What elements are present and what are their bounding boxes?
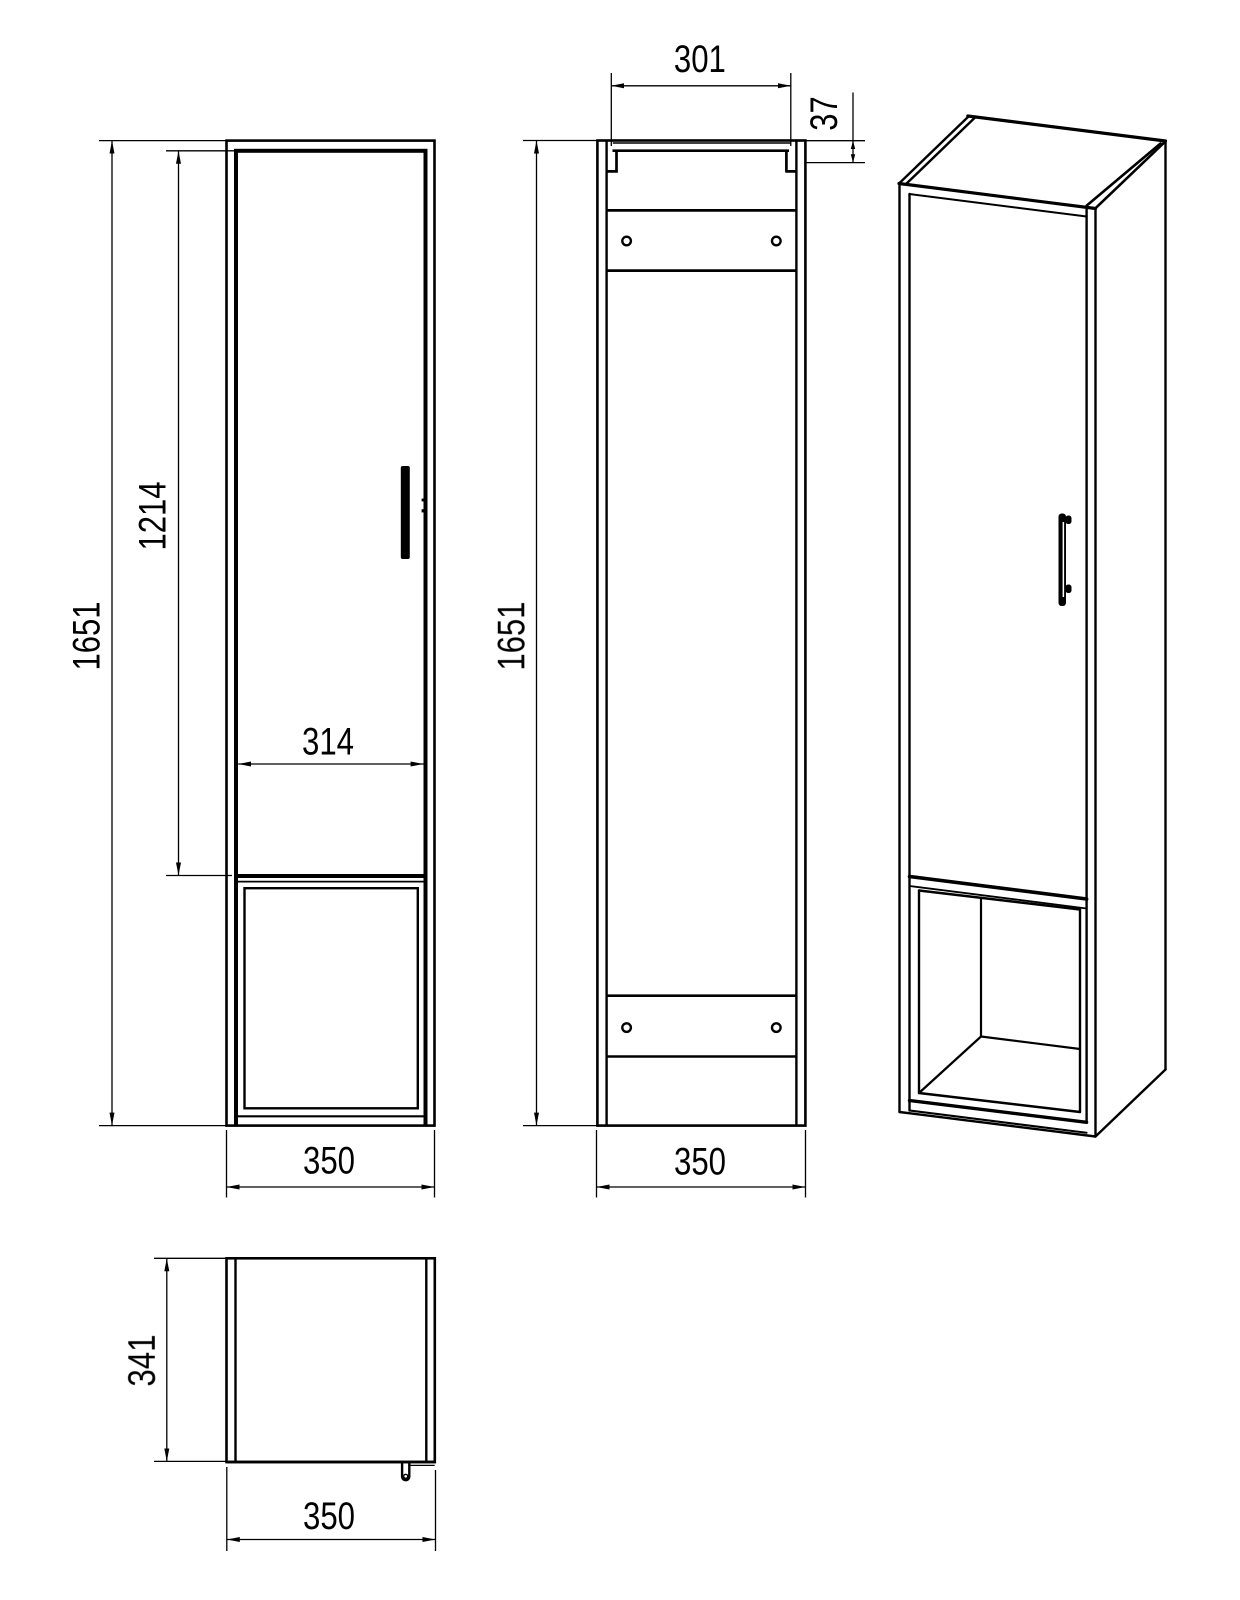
svg-text:314: 314: [302, 720, 354, 763]
svg-text:350: 350: [303, 1139, 355, 1182]
svg-text:37: 37: [803, 96, 846, 131]
svg-text:301: 301: [674, 38, 726, 81]
svg-text:350: 350: [303, 1495, 355, 1538]
svg-text:1651: 1651: [490, 601, 533, 670]
svg-text:1214: 1214: [131, 481, 174, 550]
svg-text:341: 341: [121, 1334, 164, 1386]
svg-text:1651: 1651: [65, 601, 108, 670]
svg-text:350: 350: [674, 1140, 726, 1183]
